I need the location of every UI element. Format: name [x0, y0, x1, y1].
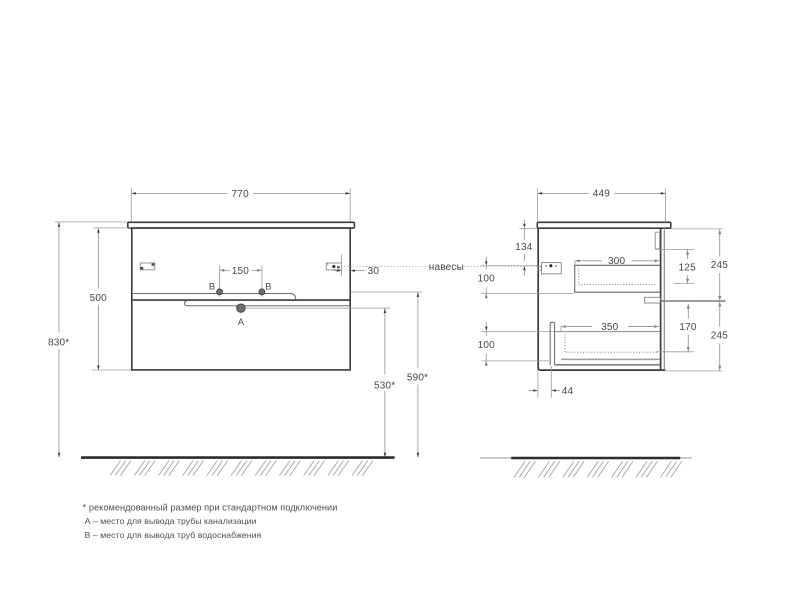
svg-text:500: 500 [90, 293, 108, 304]
svg-text:300: 300 [608, 256, 626, 267]
svg-text:245: 245 [711, 260, 729, 271]
svg-text:530*: 530* [374, 381, 395, 392]
svg-text:590*: 590* [407, 372, 428, 383]
svg-text:* рекомендованный размер при с: * рекомендованный размер при стандартном… [83, 503, 338, 513]
svg-text:100: 100 [478, 340, 496, 351]
svg-text:150: 150 [232, 266, 250, 277]
svg-text:B: B [209, 282, 215, 292]
svg-text:830*: 830* [48, 338, 69, 349]
svg-text:125: 125 [679, 262, 697, 273]
svg-text:30: 30 [368, 266, 380, 277]
svg-text:770: 770 [232, 189, 250, 200]
svg-text:449: 449 [593, 189, 611, 200]
svg-text:350: 350 [601, 322, 619, 333]
svg-text:134: 134 [515, 242, 533, 253]
svg-text:170: 170 [679, 322, 697, 333]
svg-text:B: B [265, 282, 271, 292]
svg-text:44: 44 [562, 386, 574, 397]
svg-text:245: 245 [711, 330, 729, 341]
svg-text:А – место для вывода трубы кан: А – место для вывода трубы канализации [85, 516, 257, 526]
svg-text:В – место для вывода труб водо: В – место для вывода труб водоснабжения [85, 530, 262, 540]
svg-text:A: A [238, 317, 245, 327]
svg-text:навесы: навесы [429, 262, 464, 273]
svg-text:100: 100 [478, 274, 496, 285]
